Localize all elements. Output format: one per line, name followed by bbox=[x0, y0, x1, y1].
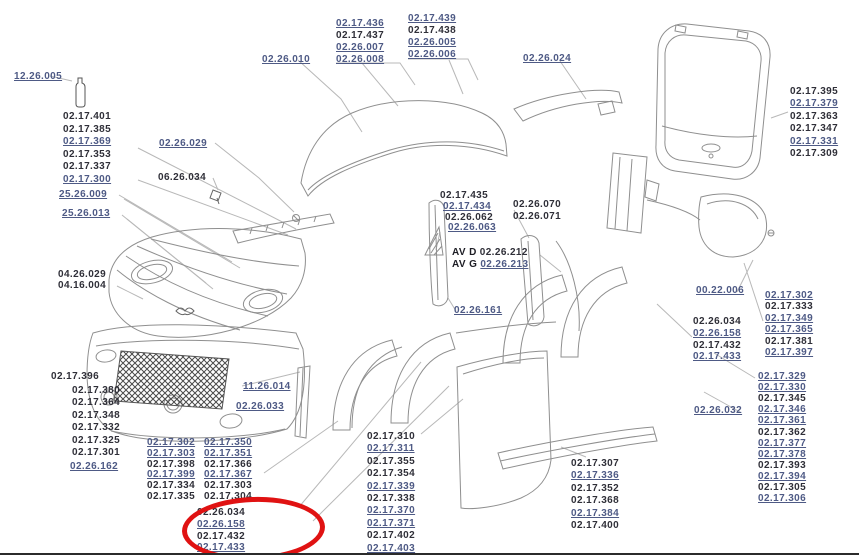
side-prefix-label: AV G bbox=[452, 259, 477, 270]
part-number-front-left-upper: 02.17.385 bbox=[63, 124, 111, 135]
part-number-door: 02.17.402 bbox=[367, 530, 415, 541]
part-number-door[interactable]: 02.17.339 bbox=[367, 481, 415, 492]
car-exploded-view-art bbox=[0, 0, 859, 553]
part-callout-02-26-029[interactable]: 02.26.029 bbox=[159, 138, 207, 149]
part-number-bumper-bottom-a[interactable]: 02.17.303 bbox=[147, 448, 195, 459]
part-number[interactable]: 12.26.005 bbox=[14, 71, 62, 82]
part-number-front-left-upper[interactable]: 02.17.369 bbox=[63, 136, 111, 147]
part-number-rear-lower: 02.17.305 bbox=[758, 482, 806, 493]
part-number-top-center-left[interactable]: 02.17.436 bbox=[336, 18, 384, 29]
rear-hatch bbox=[656, 24, 770, 179]
part-number-top-center-left[interactable]: 02.26.007 bbox=[336, 42, 384, 53]
part-number-rear-outer: 02.17.333 bbox=[765, 301, 813, 312]
part-number-door: 02.17.338 bbox=[367, 493, 415, 504]
part-number-door[interactable]: 02.17.371 bbox=[367, 518, 415, 529]
part-callout-02-26-161[interactable]: 02.26.161 bbox=[454, 305, 502, 316]
part-number-rear-inner: 02.17.432 bbox=[693, 340, 741, 351]
part-number[interactable]: 02.26.029 bbox=[159, 138, 207, 149]
part-number-rear-lower[interactable]: 02.17.306 bbox=[758, 493, 806, 504]
part-number-hatch-right[interactable]: 02.17.331 bbox=[790, 136, 838, 147]
part-number-top-center-left[interactable]: 02.26.008 bbox=[336, 54, 384, 65]
part-number[interactable]: 11.26.014 bbox=[243, 381, 291, 392]
part-number-bumper-bottom-a: 02.17.398 bbox=[147, 459, 195, 470]
part-number-skirt: 02.17.400 bbox=[571, 520, 619, 531]
rocker-strip bbox=[295, 366, 310, 438]
part-number-rear-lower: 02.17.393 bbox=[758, 460, 806, 471]
part-number-bumper-left: 02.17.332 bbox=[72, 422, 120, 433]
rear-bumper-corner bbox=[699, 194, 774, 257]
part-number-bumper-left: 02.17.325 bbox=[72, 435, 120, 446]
part-number-top-center-left: 02.17.437 bbox=[336, 30, 384, 41]
part-callout-av-d-02-26-212: AV D02.26.212 bbox=[452, 247, 528, 258]
part-number-door: 02.17.354 bbox=[367, 468, 415, 479]
part-number-bumper-bottom-b: 02.17.303 bbox=[204, 480, 252, 491]
part-number-skirt: 02.17.368 bbox=[571, 495, 619, 506]
part-number-door[interactable]: 02.17.403 bbox=[367, 543, 415, 554]
part-number-top-center-right[interactable]: 02.17.439 bbox=[408, 13, 456, 24]
clip-icon bbox=[210, 190, 221, 204]
part-number-rear-lower[interactable]: 02.17.329 bbox=[758, 371, 806, 382]
side-prefix-label: AV D bbox=[452, 247, 477, 258]
part-number-skirt[interactable]: 02.17.384 bbox=[571, 508, 619, 519]
part-number-circled: 02.26.034 bbox=[197, 507, 245, 518]
part-number-bumper-bottom-a[interactable]: 02.17.399 bbox=[147, 469, 195, 480]
part-number-skirt: 02.17.307 bbox=[571, 458, 619, 469]
part-number-hatch-right: 02.17.347 bbox=[790, 123, 838, 134]
part-number[interactable]: 02.26.032 bbox=[694, 405, 742, 416]
grille bbox=[114, 351, 229, 409]
part-number-bumper-bottom-b[interactable]: 02.17.367 bbox=[204, 469, 252, 480]
part-callout-25-26-013[interactable]: 25.26.013 bbox=[62, 208, 110, 219]
part-number-rear-lower[interactable]: 02.17.330 bbox=[758, 382, 806, 393]
part-number-bumper-bottom-b[interactable]: 02.17.351 bbox=[204, 448, 252, 459]
part-number-top-center-right[interactable]: 02.26.006 bbox=[408, 49, 456, 60]
part-number-center-pillar: 02.26.062 bbox=[445, 212, 493, 223]
part-number-rear-outer: 02.17.381 bbox=[765, 336, 813, 347]
part-number-hatch-right: 02.17.395 bbox=[790, 86, 838, 97]
part-number-door: 02.17.355 bbox=[367, 456, 415, 467]
part-number: 04.26.029 bbox=[58, 269, 106, 280]
part-callout-11-26-014[interactable]: 11.26.014 bbox=[243, 381, 291, 392]
part-callout-12-26-005[interactable]: 12.26.005 bbox=[14, 71, 62, 82]
part-number-bumper-left: 02.17.364 bbox=[72, 397, 120, 408]
part-number-bumper-bottom-b: 02.17.366 bbox=[204, 459, 252, 470]
part-callout-06-26-034: 06.26.034 bbox=[158, 172, 206, 183]
part-number-bumper-bottom-a[interactable]: 02.17.302 bbox=[147, 437, 195, 448]
part-number-bumper-bottom-a: 02.17.335 bbox=[147, 491, 195, 502]
part-number-rear-lower[interactable]: 02.17.394 bbox=[758, 471, 806, 482]
part-number[interactable]: 02.26.033 bbox=[236, 401, 284, 412]
part-number-center-pillar[interactable]: 02.26.063 bbox=[448, 222, 496, 233]
cowl-panel bbox=[233, 214, 334, 243]
part-number-front-left-upper: 02.17.353 bbox=[63, 149, 111, 160]
part-number-rear-lower[interactable]: 02.17.346 bbox=[758, 404, 806, 415]
part-number-rear-lower[interactable]: 02.17.378 bbox=[758, 449, 806, 460]
part-number-rear-outer[interactable]: 02.17.349 bbox=[765, 313, 813, 324]
part-number-circled: 02.17.432 bbox=[197, 531, 245, 542]
part-number-door[interactable]: 02.17.370 bbox=[367, 505, 415, 516]
rear-corner-pillar bbox=[607, 153, 700, 233]
part-number-bumper-left: 02.17.380 bbox=[72, 385, 120, 396]
part-number-hatch-right: 02.17.309 bbox=[790, 148, 838, 159]
part-callout-00-22-006[interactable]: 00.22.006 bbox=[696, 285, 744, 296]
part-number: 04.16.004 bbox=[58, 280, 106, 291]
part-number-rear-outer[interactable]: 02.17.365 bbox=[765, 324, 813, 335]
part-number-rear-inner: 02.26.034 bbox=[693, 316, 741, 327]
part-number[interactable]: 00.22.006 bbox=[696, 285, 744, 296]
part-number-top-center-right: 02.17.438 bbox=[408, 25, 456, 36]
screw-fastener-icon bbox=[76, 78, 85, 107]
part-number[interactable]: 02.26.010 bbox=[262, 54, 310, 65]
part-callout-02-26-033[interactable]: 02.26.033 bbox=[236, 401, 284, 412]
part-callout-02-26-032[interactable]: 02.26.032 bbox=[694, 405, 742, 416]
part-number[interactable]: 02.26.161 bbox=[454, 305, 502, 316]
front-wheel-arches bbox=[333, 333, 455, 430]
part-number[interactable]: 25.26.013 bbox=[62, 208, 110, 219]
part-callout-04-16-004: 04.16.004 bbox=[58, 280, 106, 291]
part-number-rear-outer[interactable]: 02.17.397 bbox=[765, 347, 813, 358]
part-number-skirt[interactable]: 02.17.336 bbox=[571, 470, 619, 481]
part-number[interactable]: 02.26.024 bbox=[523, 53, 571, 64]
part-number-front-left-upper: 02.17.401 bbox=[63, 111, 111, 122]
door-panel bbox=[457, 351, 551, 509]
part-number-center-pillar: 02.17.435 bbox=[440, 190, 488, 201]
part-number-door: 02.17.310 bbox=[367, 431, 415, 442]
part-number-front-left-upper: 02.17.337 bbox=[63, 161, 111, 172]
part-callout-av-g-02-26-213[interactable]: AV G02.26.213 bbox=[452, 259, 528, 270]
part-number-bumper-bottom-b: 02.17.304 bbox=[204, 491, 252, 502]
part-number-bumper-left: 02.17.348 bbox=[72, 410, 120, 421]
parts-diagram: 12.26.00502.26.01002.26.02906.26.03425.2… bbox=[0, 0, 859, 555]
part-number: 06.26.034 bbox=[158, 172, 206, 183]
part-callout-02-26-162[interactable]: 02.26.162 bbox=[70, 461, 118, 472]
part-number-quarter-upper: 02.26.070 bbox=[513, 199, 561, 210]
roof-spoiler-trim bbox=[514, 90, 622, 121]
part-number-bumper-left-head: 02.17.396 bbox=[51, 371, 99, 382]
part-callout-02-26-010[interactable]: 02.26.010 bbox=[262, 54, 310, 65]
part-number-rear-lower[interactable]: 02.17.361 bbox=[758, 415, 806, 426]
part-number[interactable]: 02.26.162 bbox=[70, 461, 118, 472]
part-number-rear-inner[interactable]: 02.26.158 bbox=[693, 328, 741, 339]
part-number-bumper-bottom-b[interactable]: 02.17.350 bbox=[204, 437, 252, 448]
part-number-bumper-bottom-a: 02.17.334 bbox=[147, 480, 195, 491]
hood bbox=[109, 229, 305, 338]
part-number-rear-outer[interactable]: 02.17.302 bbox=[765, 290, 813, 301]
part-number-hatch-right[interactable]: 02.17.379 bbox=[790, 98, 838, 109]
part-number-front-left-upper[interactable]: 02.17.300 bbox=[63, 174, 111, 185]
part-callout-04-26-029: 04.26.029 bbox=[58, 269, 106, 280]
part-number-rear-inner[interactable]: 02.17.433 bbox=[693, 351, 741, 362]
part-callout-25-26-009[interactable]: 25.26.009 bbox=[59, 189, 107, 200]
part-number-center-pillar[interactable]: 02.17.434 bbox=[443, 201, 491, 212]
part-number-circled[interactable]: 02.17.433 bbox=[197, 542, 245, 553]
quarter-pillar bbox=[521, 236, 579, 331]
part-number[interactable]: 25.26.009 bbox=[59, 189, 107, 200]
part-callout-02-26-024[interactable]: 02.26.024 bbox=[523, 53, 571, 64]
part-number-rear-lower: 02.17.362 bbox=[758, 427, 806, 438]
part-number[interactable]: 02.26.213 bbox=[480, 259, 528, 270]
part-number: 02.26.212 bbox=[480, 247, 528, 258]
part-number-quarter-upper: 02.26.071 bbox=[513, 211, 561, 222]
part-number-hatch-right: 02.17.363 bbox=[790, 111, 838, 122]
part-number-skirt: 02.17.352 bbox=[571, 483, 619, 494]
part-number-top-center-right[interactable]: 02.26.005 bbox=[408, 37, 456, 48]
part-number-bumper-left: 02.17.301 bbox=[72, 447, 120, 458]
windshield bbox=[301, 101, 507, 196]
part-number-rear-lower[interactable]: 02.17.377 bbox=[758, 438, 806, 449]
part-number-circled[interactable]: 02.26.158 bbox=[197, 519, 245, 530]
part-number-door[interactable]: 02.17.311 bbox=[367, 443, 415, 454]
part-number-rear-lower: 02.17.345 bbox=[758, 393, 806, 404]
